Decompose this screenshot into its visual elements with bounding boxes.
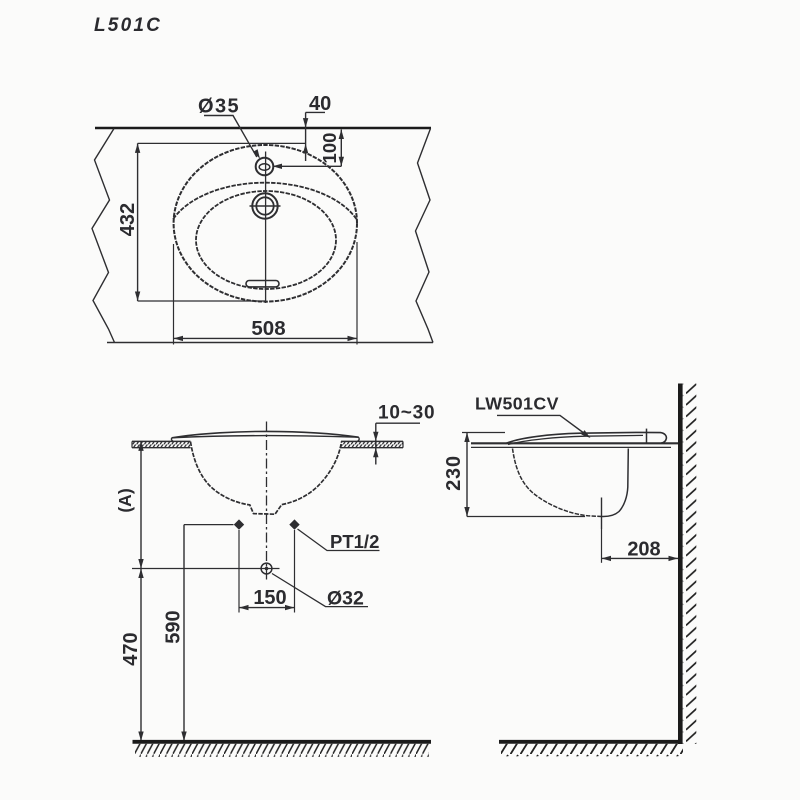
svg-text:10~30: 10~30 (378, 403, 435, 424)
svg-text:L501C: L501C (94, 15, 162, 36)
svg-text:230: 230 (443, 455, 465, 491)
svg-text:LW501CV: LW501CV (475, 393, 559, 413)
svg-text:470: 470 (120, 632, 142, 665)
svg-text:Ø35: Ø35 (198, 96, 240, 118)
svg-text:150: 150 (253, 587, 286, 609)
svg-text:432: 432 (117, 203, 139, 236)
svg-text:PT1/2: PT1/2 (330, 531, 379, 552)
svg-text:590: 590 (163, 610, 185, 643)
svg-text:208: 208 (627, 539, 660, 561)
svg-text:Ø32: Ø32 (327, 588, 364, 610)
svg-text:508: 508 (251, 317, 285, 340)
svg-text:(A): (A) (115, 488, 135, 512)
svg-text:40: 40 (309, 93, 331, 115)
svg-text:100: 100 (319, 133, 340, 164)
